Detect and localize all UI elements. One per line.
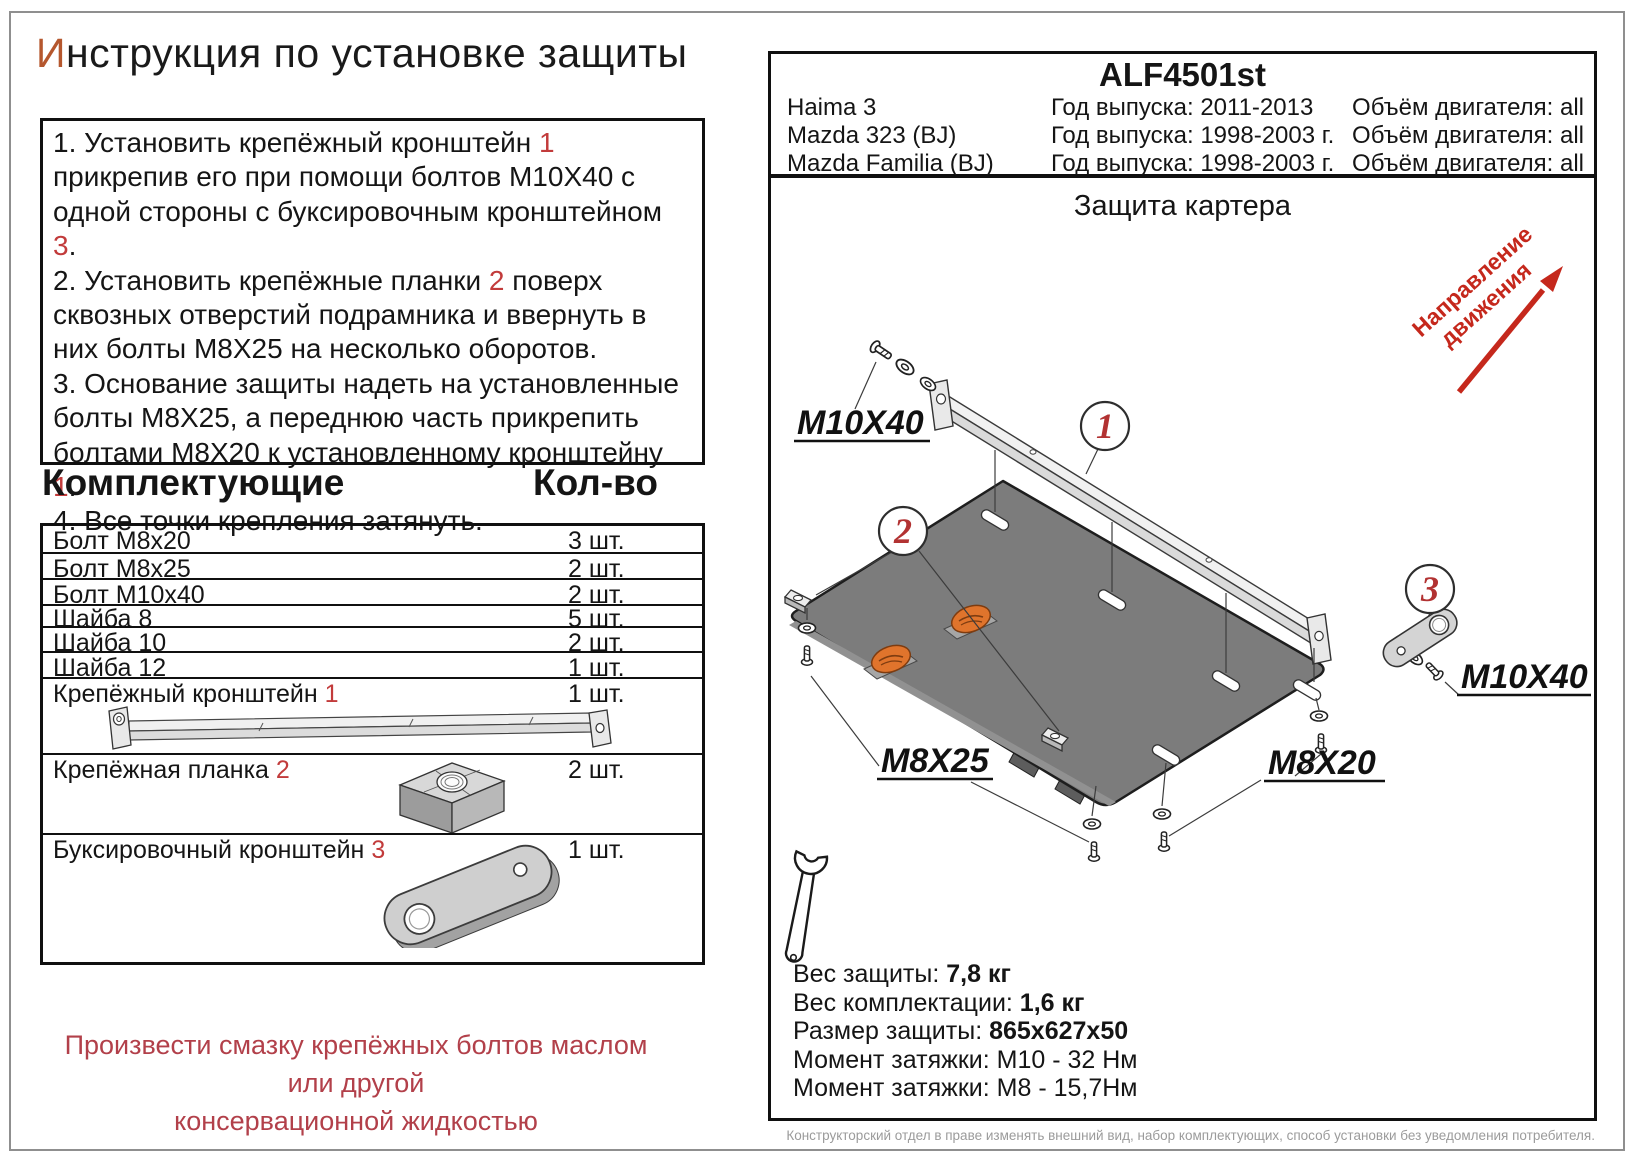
spec-label: Вес защиты: (793, 960, 946, 988)
part-name-text: Буксировочный кронштейн (53, 836, 371, 864)
callout-1: 1 (1081, 402, 1129, 450)
table-row: Болт М8х25 2 шт. (43, 552, 702, 578)
direction-label: Направление движения (1407, 221, 1555, 361)
lubrication-note-line1: Произвести смазку крепёжных болтов масло… (40, 1026, 672, 1102)
part-name-text: Крепёжная планка (53, 756, 276, 784)
step-3-text: 3. Основание защиты надеть на установлен… (53, 368, 679, 468)
washer-icon (1311, 711, 1328, 721)
washer-icon (1084, 819, 1101, 829)
footer-disclaimer: Конструкторский отдел в праве изменять в… (786, 1128, 1595, 1143)
spec-label: Размер защиты: (793, 1017, 989, 1045)
bolt-icon (1423, 660, 1444, 681)
table-row: Крепёжный кронштейн 1 1 шт. (43, 677, 702, 753)
product-code: ALF4501st (771, 56, 1594, 94)
washer-icon (1154, 809, 1171, 819)
table-row: Болт М10х40 2 шт. (43, 578, 702, 604)
callout-2: 2 (879, 507, 927, 555)
spec-torque-m10: Момент затяжки: М10 - 32 Нм (793, 1046, 1138, 1075)
step-1: 1. Установить крепёжный кронштейн 1 прик… (53, 126, 692, 264)
spec-label: Вес комплектации: (793, 989, 1020, 1017)
part-name-text: Крепёжный кронштейн (53, 680, 325, 708)
label-m8x25: M8X25 (881, 742, 990, 780)
part-name: Буксировочный кронштейн 3 (53, 836, 385, 865)
table-row: Крепёжная планка 2 2 шт. (43, 753, 702, 833)
spec-label: Момент затяжки: (793, 1074, 997, 1102)
assembly-diagram-box: Защита картера (768, 175, 1597, 1121)
vehicle-model: Mazda Familia (BJ) (787, 150, 994, 178)
callout-3-number: 3 (1420, 569, 1439, 609)
callout-2-number: 2 (893, 511, 912, 551)
label-m10x40-left: M10X40 (797, 404, 924, 442)
parts-table: Болт М8х20 3 шт. Болт М8х25 2 шт. Болт М… (40, 523, 705, 965)
label-m8x20: M8X20 (1268, 744, 1376, 782)
callout-3: 3 (1406, 565, 1454, 613)
table-row: Шайба 10 2 шт. (43, 626, 702, 651)
specifications: Вес защиты: 7,8 кг Вес комплектации: 1,6… (793, 960, 1138, 1103)
spec-value: М8 - 15,7Нм (997, 1074, 1138, 1102)
lubrication-note: Произвести смазку крепёжных болтов масло… (40, 1026, 672, 1140)
parts-qty-title: Кол-во (533, 462, 658, 504)
vehicle-years: Год выпуска: 1998-2003 г. (1051, 150, 1334, 178)
vehicle-years: Год выпуска: 2011-2013 (1051, 94, 1313, 122)
step-2-ref-2: 2 (489, 265, 505, 296)
spec-torque-m8: Момент затяжки: М8 - 15,7Нм (793, 1074, 1138, 1103)
wrench-icon (777, 851, 827, 964)
table-row: Шайба 12 1 шт. (43, 651, 702, 677)
vehicle-model: Haima 3 (787, 94, 876, 122)
table-row: Болт М8х20 3 шт. (43, 526, 702, 552)
vehicle-years: Год выпуска: 1998-2003 г. (1051, 122, 1334, 150)
step-2-text: 2. Установить крепёжные планки (53, 265, 489, 296)
step-1-ref-3: 3 (53, 230, 69, 261)
diagram-title: Защита картера (771, 190, 1594, 223)
parts-list-title: Комплектующие (42, 462, 344, 504)
spec-value: 7,8 кг (946, 960, 1011, 988)
lubrication-note-line2: консервационной жидкостью (40, 1102, 672, 1140)
step-1-text: 1. Установить крепёжный кронштейн (53, 127, 539, 158)
spec-weight: Вес защиты: 7,8 кг (793, 960, 1138, 989)
step-1-text: . (69, 230, 77, 261)
vehicle-engine: Объём двигателя: all (1352, 94, 1584, 122)
product-header-box: ALF4501st Haima 3 Год выпуска: 2011-2013… (768, 51, 1597, 177)
spec-value: 865х627х50 (989, 1017, 1128, 1045)
clamp-plate-image (388, 755, 518, 835)
step-1-text: прикрепив его при помощи болтов М10Х40 с… (53, 161, 662, 226)
shield-plate (789, 481, 1324, 806)
spec-value: 1,6 кг (1020, 989, 1085, 1017)
vehicle-row: Haima 3 Год выпуска: 2011-2013 Объём дви… (771, 94, 1594, 122)
part-number: 1 (325, 680, 339, 708)
page-title: Инструкция по установке защиты (36, 30, 688, 77)
vehicle-engine: Объём двигателя: all (1352, 150, 1584, 178)
step-2: 2. Установить крепёжные планки 2 поверх … (53, 264, 692, 367)
instruction-sheet: Инструкция по установке защиты 1. Устано… (0, 0, 1642, 1168)
vehicle-row: Mazda 323 (BJ) Год выпуска: 1998-2003 г.… (771, 122, 1594, 150)
spec-kit-weight: Вес комплектации: 1,6 кг (793, 989, 1138, 1018)
spec-value: М10 - 32 Нм (997, 1046, 1138, 1074)
title-rest: нструкция по установке защиты (66, 30, 688, 76)
installation-steps-box: 1. Установить крепёжный кронштейн 1 прик… (40, 118, 705, 465)
vehicle-engine: Объём двигателя: all (1352, 122, 1584, 150)
step-1-ref-1: 1 (539, 127, 555, 158)
bolt-icon (869, 339, 894, 362)
part-qty: 2 шт. (568, 756, 625, 785)
part-name: Крепёжная планка 2 (53, 756, 290, 785)
table-row: Шайба 8 5 шт. (43, 604, 702, 626)
washer-icon (799, 623, 816, 633)
mounting-bracket-image (103, 705, 623, 755)
title-initial: И (36, 30, 66, 76)
spec-label: Момент затяжки: (793, 1046, 997, 1074)
towing-bracket-image (358, 843, 578, 948)
bolt-icon (1159, 832, 1170, 851)
label-m10x40-right: M10X40 (1461, 658, 1588, 696)
bolt-icon (802, 646, 813, 665)
part-number: 2 (276, 756, 290, 784)
callout-1-number: 1 (1096, 406, 1114, 446)
spec-size: Размер защиты: 865х627х50 (793, 1017, 1138, 1046)
vehicle-model: Mazda 323 (BJ) (787, 122, 956, 150)
bolt-icon (1089, 842, 1100, 861)
vehicle-row: Mazda Familia (BJ) Год выпуска: 1998-200… (771, 150, 1594, 178)
washer-icon (894, 357, 917, 378)
table-row: Буксировочный кронштейн 3 1 шт. (43, 833, 702, 946)
